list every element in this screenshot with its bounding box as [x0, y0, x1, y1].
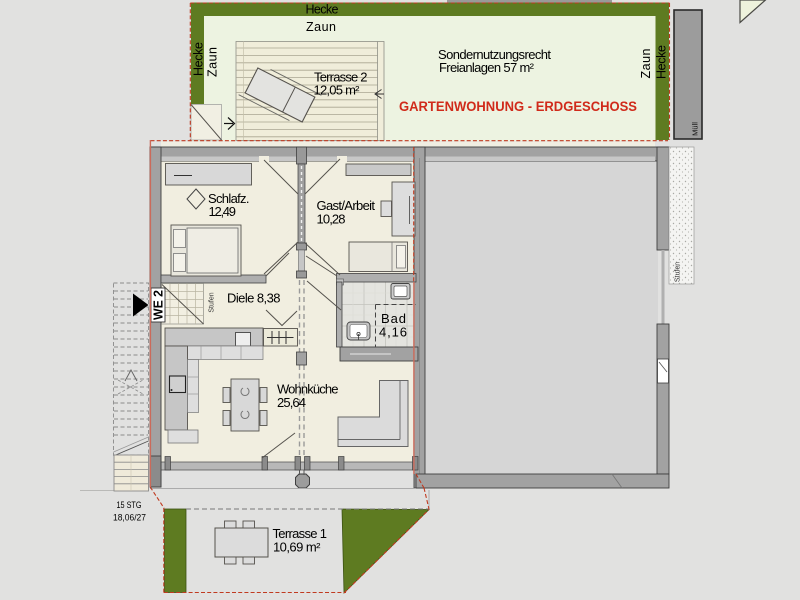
svg-text:Stufen: Stufen — [209, 292, 216, 312]
svg-text:Hecke: Hecke — [192, 42, 206, 76]
svg-text:4,16: 4,16 — [379, 325, 407, 340]
svg-text:10,28: 10,28 — [317, 212, 346, 227]
svg-text:Zaun: Zaun — [639, 48, 653, 78]
svg-text:15 STG: 15 STG — [117, 500, 142, 510]
svg-text:Zaun: Zaun — [306, 20, 336, 34]
svg-text:12,05 m²: 12,05 m² — [314, 83, 361, 98]
svg-text:12,49: 12,49 — [209, 204, 237, 219]
svg-text:Müll: Müll — [691, 122, 700, 136]
svg-text:Stufen: Stufen — [675, 262, 682, 282]
svg-text:Hecke: Hecke — [306, 3, 339, 17]
svg-text:Zaun: Zaun — [206, 47, 220, 77]
svg-text:Hecke: Hecke — [655, 45, 669, 79]
svg-text:WE 2: WE 2 — [151, 290, 166, 320]
svg-text:10,69 m²: 10,69 m² — [273, 540, 321, 555]
svg-text:Diele 8,38: Diele 8,38 — [227, 291, 281, 306]
svg-text:Freianlagen 57 m²: Freianlagen 57 m² — [439, 60, 535, 75]
svg-text:GARTENWOHNUNG - ERDGESCHOSS: GARTENWOHNUNG - ERDGESCHOSS — [399, 99, 637, 114]
svg-text:18,06/27: 18,06/27 — [113, 513, 146, 523]
svg-text:25,64: 25,64 — [277, 395, 306, 410]
